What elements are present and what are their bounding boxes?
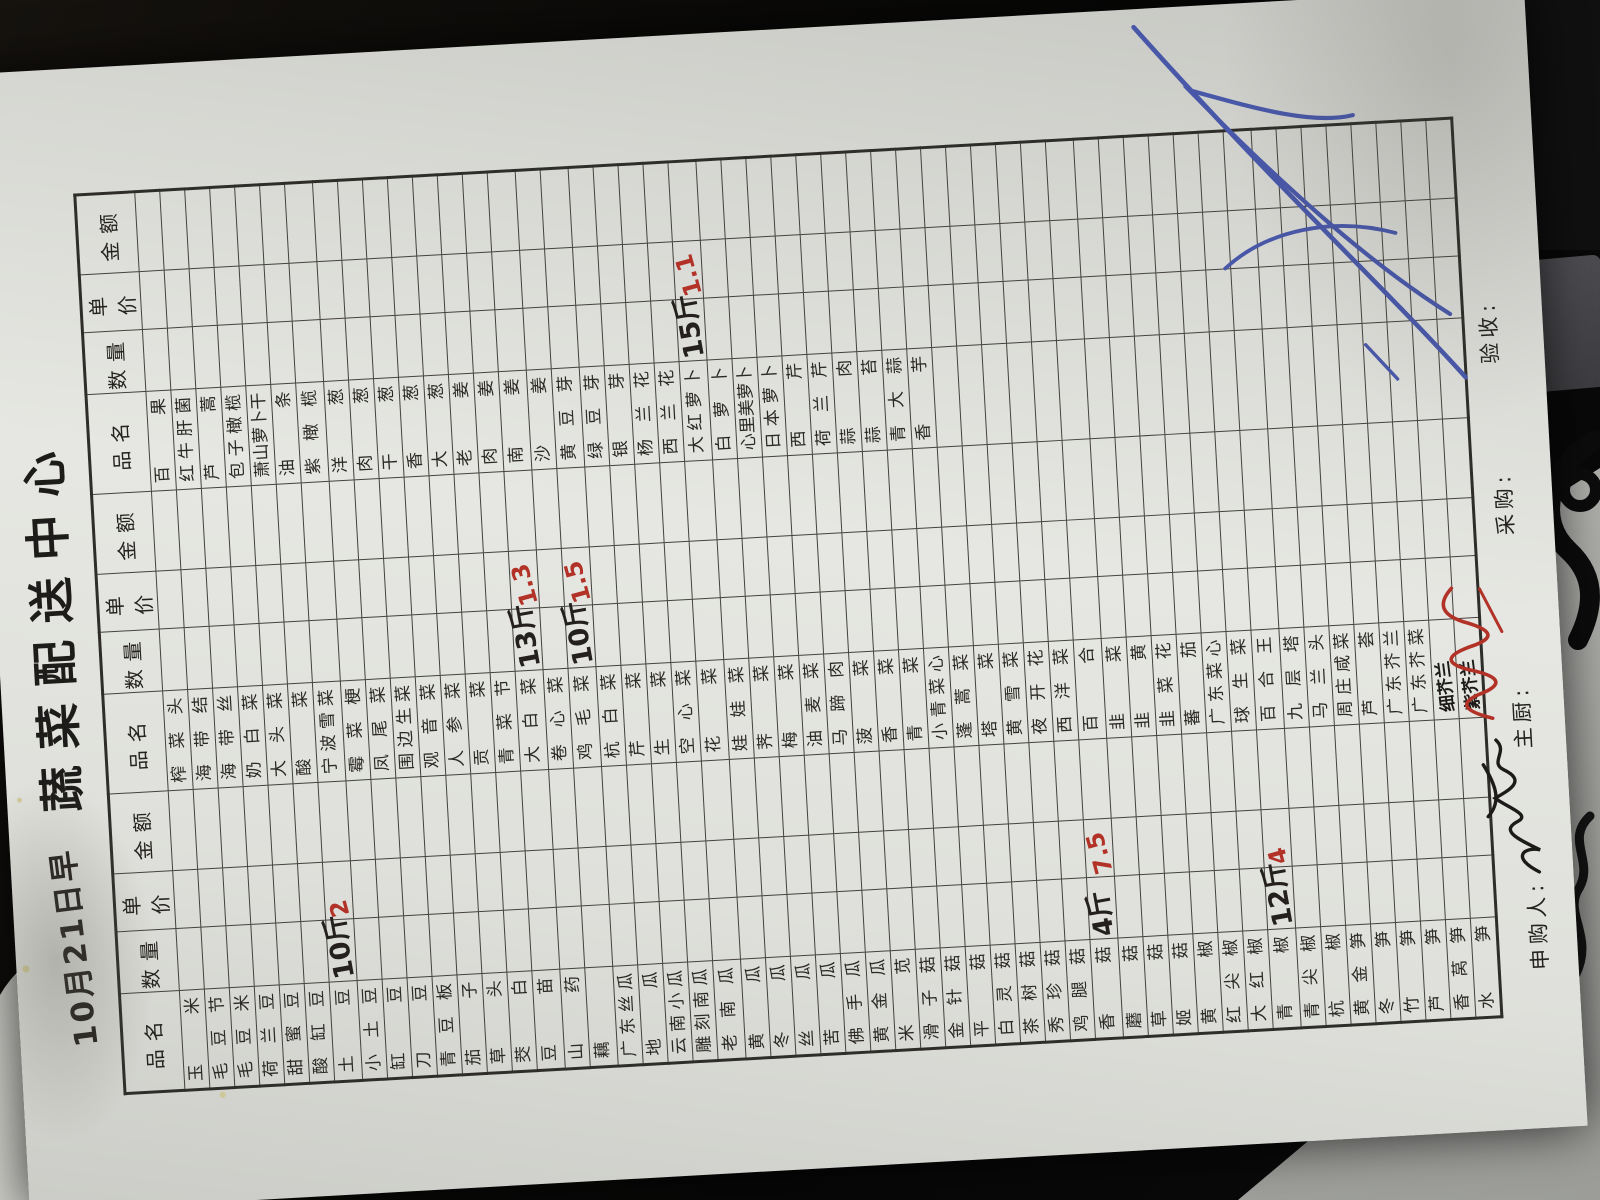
item-name: 大头菜 xyxy=(267,687,289,783)
price-cell xyxy=(1330,204,1358,263)
qty-cell xyxy=(1317,863,1345,926)
amount-cell xyxy=(504,470,536,551)
price-cell xyxy=(248,865,276,924)
price-cell xyxy=(1025,221,1053,280)
qty-cell xyxy=(370,315,398,378)
price-cell xyxy=(884,830,912,889)
qty-cell xyxy=(1156,271,1184,334)
item-name: 秀珍菇 xyxy=(1044,944,1066,1039)
qty-cell xyxy=(1425,557,1453,620)
item-name: 蕃茄 xyxy=(1180,636,1202,732)
qty-cell xyxy=(1375,560,1403,623)
item-name: 毛豆节 xyxy=(208,990,230,1085)
price-cell xyxy=(975,223,1003,282)
item-name: 小青菜心 xyxy=(928,650,950,746)
item-name: 菠菜 xyxy=(853,654,875,750)
item-name: 红牛肝菌 xyxy=(175,391,197,487)
item-name: 酸菜 xyxy=(292,685,314,781)
tape-speck xyxy=(22,965,29,972)
qty-cell xyxy=(404,914,432,977)
qty-cell xyxy=(601,302,629,365)
item-name: 沙姜 xyxy=(530,371,552,467)
qty-cell xyxy=(945,584,973,647)
price-cell xyxy=(925,226,953,285)
item-name: 酸缸豆 xyxy=(308,985,330,1080)
amount-cell xyxy=(701,759,733,840)
price-cell xyxy=(1178,212,1206,271)
qty-cell xyxy=(970,582,998,645)
item-name: 生菜 xyxy=(650,665,672,761)
price-cell xyxy=(1314,805,1342,864)
price-cell xyxy=(367,257,395,316)
amount-cell xyxy=(668,160,700,241)
qty-cell xyxy=(1359,260,1387,323)
price-cell xyxy=(1119,516,1147,575)
price-cell xyxy=(1347,503,1375,562)
amount-cell xyxy=(557,467,589,548)
price-cell xyxy=(800,233,828,292)
qty-cell xyxy=(1417,858,1445,921)
price-cell xyxy=(706,839,737,898)
tape-speck xyxy=(220,1092,226,1098)
item-name: 卷心菜 xyxy=(547,671,569,767)
qty-cell xyxy=(445,311,473,374)
item-name: 小土豆 xyxy=(361,982,383,1077)
qty-cell xyxy=(720,596,748,659)
item-name: 老姜 xyxy=(453,376,475,472)
qty-cell xyxy=(503,909,531,972)
price-cell xyxy=(850,230,878,289)
item-name: 鸡毛菜 xyxy=(574,670,596,766)
price-cell xyxy=(442,253,470,312)
item-name: 香葱 xyxy=(403,379,425,475)
item-name: 韭黄 xyxy=(1130,638,1152,734)
item-name: 韭菜 xyxy=(1105,640,1127,736)
price-cell xyxy=(614,544,642,603)
item-name: 花菜 xyxy=(701,662,723,758)
qty-cell xyxy=(667,599,695,662)
price-cell xyxy=(817,533,845,592)
qty-cell xyxy=(1189,871,1217,934)
qty-cell xyxy=(828,290,856,353)
amount-cell xyxy=(1079,738,1111,819)
item-name: 荠菜 xyxy=(753,659,775,755)
item-name: 苦瓜 xyxy=(820,956,842,1051)
qty-cell xyxy=(1037,879,1065,942)
amount-cell xyxy=(1223,129,1255,210)
qty-cell xyxy=(837,890,865,953)
qty-cell xyxy=(1148,572,1176,635)
price-cell xyxy=(958,825,986,884)
price-cell xyxy=(834,832,862,891)
price-cell xyxy=(198,868,226,927)
price-cell xyxy=(1042,520,1070,579)
price-cell xyxy=(359,558,387,617)
item-name: 南姜 xyxy=(504,373,526,469)
item-name: 黄雪菜 xyxy=(1002,646,1024,742)
qty-cell xyxy=(1003,280,1031,343)
item-name: 草菇 xyxy=(1147,938,1169,1033)
qty-cell xyxy=(659,900,687,963)
price-cell xyxy=(1227,209,1258,268)
item-name: 金针菇 xyxy=(944,949,966,1044)
price-cell xyxy=(164,269,192,328)
qty-cell xyxy=(470,310,498,373)
price-cell xyxy=(1372,502,1400,561)
header-cell-amount: 金额 xyxy=(92,491,156,574)
qty-cell xyxy=(276,922,304,985)
qty-cell xyxy=(523,307,551,370)
price-cell xyxy=(1236,810,1264,869)
qty-cell xyxy=(362,616,390,679)
price-cell xyxy=(1161,814,1189,873)
qty-cell xyxy=(1334,262,1362,325)
item-name: 缸豆 xyxy=(386,980,408,1075)
price-cell xyxy=(1464,797,1493,856)
price-cell xyxy=(475,852,503,911)
qty-cell xyxy=(478,910,506,973)
qty-cell xyxy=(795,592,823,655)
qty-cell xyxy=(787,893,815,956)
price-cell xyxy=(1422,499,1450,558)
qty-cell xyxy=(495,308,526,371)
price-cell xyxy=(1128,215,1156,274)
chef-label: 主厨: xyxy=(1505,684,1539,750)
item-name: 西芹 xyxy=(786,357,808,453)
handwritten-price: 1.5 xyxy=(560,558,594,605)
item-name: 百合 xyxy=(1079,641,1101,737)
item-name: 老南瓜 xyxy=(718,962,740,1057)
price-cell xyxy=(500,851,528,910)
price-cell xyxy=(1219,510,1247,569)
qty-cell xyxy=(1300,564,1328,627)
item-name: 榨菜头 xyxy=(167,692,189,788)
qty-cell xyxy=(1367,861,1395,924)
item-name: 凤尾菜 xyxy=(369,681,391,777)
qty-cell xyxy=(1342,862,1370,925)
item-name: 青尖椒 xyxy=(1300,929,1322,1024)
price-cell xyxy=(239,265,267,324)
price-cell xyxy=(734,838,762,897)
price-cell xyxy=(631,844,659,903)
price-cell xyxy=(983,824,1011,883)
price-cell xyxy=(483,551,511,610)
item-name: 青豆板 xyxy=(436,978,458,1073)
qty-cell xyxy=(778,293,806,356)
item-name: 竹笋 xyxy=(1400,924,1422,1019)
price-cell xyxy=(400,857,428,916)
price-cell xyxy=(656,842,684,901)
price-cell xyxy=(775,235,803,294)
amount-cell xyxy=(1442,418,1472,499)
item-name: 广东芥兰 xyxy=(1383,624,1405,720)
item-name: 香菇 xyxy=(1096,941,1118,1036)
item-name: 夜开花 xyxy=(1027,644,1049,740)
amount-cell xyxy=(301,481,333,562)
item-name: 韭菜花 xyxy=(1155,637,1177,733)
item-name: 冬瓜 xyxy=(770,959,792,1054)
price-cell xyxy=(1144,514,1172,573)
item-name: 贡菜 xyxy=(469,675,491,771)
item-name: 观音菜 xyxy=(419,678,441,774)
price-cell xyxy=(1103,216,1131,275)
price-cell xyxy=(1414,800,1442,859)
price-cell xyxy=(1136,815,1164,874)
item-name: 白萝卜 xyxy=(711,361,733,457)
item-name: 广东芥菜 xyxy=(1408,623,1430,719)
qty-cell xyxy=(242,323,270,386)
item-name: 人参菜 xyxy=(444,677,466,773)
qty-cell xyxy=(1392,859,1420,922)
price-cell xyxy=(1255,208,1283,267)
item-name: 平菇 xyxy=(969,948,991,1043)
item-name: 广东菜心 xyxy=(1205,634,1227,730)
item-name: 佛手瓜 xyxy=(844,955,866,1050)
item-name: 香莴笋 xyxy=(1450,921,1472,1016)
price-cell xyxy=(859,831,887,890)
price-cell xyxy=(1194,512,1222,571)
item-name: 地瓜 xyxy=(642,966,664,1061)
price-cell xyxy=(317,260,345,319)
qty-cell xyxy=(887,887,915,950)
item-name: 芦荟 xyxy=(1358,626,1380,722)
price-cell xyxy=(334,560,362,619)
qty-cell xyxy=(753,294,781,357)
price-cell xyxy=(458,553,486,612)
price-cell xyxy=(467,252,495,311)
amount-cell xyxy=(487,170,519,251)
qty-cell xyxy=(737,896,765,959)
price-cell xyxy=(1058,820,1086,879)
price-cell: 1.1 xyxy=(672,240,703,299)
header-cell-amount: 金额 xyxy=(75,192,139,275)
qty-cell: 12斤 xyxy=(1264,866,1295,929)
item-name: 刀豆 xyxy=(411,979,433,1074)
qty-cell xyxy=(556,906,584,969)
item-name: 周庄咸菜 xyxy=(1333,627,1355,723)
item-name: 大葱 xyxy=(428,377,450,473)
price-cell xyxy=(742,537,770,596)
qty-cell xyxy=(1231,267,1262,330)
price-cell xyxy=(525,849,556,908)
item-name: 茶树菇 xyxy=(1019,945,1041,1040)
price-cell xyxy=(1405,199,1433,258)
qty-cell xyxy=(1400,558,1428,621)
price-cell xyxy=(892,529,920,588)
price-cell xyxy=(545,247,576,306)
qty-cell xyxy=(853,288,881,351)
qty-cell xyxy=(1450,555,1479,618)
price-cell xyxy=(992,523,1020,582)
qty-cell xyxy=(1123,574,1151,637)
amount-cell xyxy=(1045,139,1077,220)
item-name: 青菜节 xyxy=(494,674,516,770)
price-cell xyxy=(647,242,675,301)
item-name: 西兰花 xyxy=(658,364,680,460)
item-name: 山药 xyxy=(564,971,586,1066)
qty-cell xyxy=(176,927,204,990)
price-cell xyxy=(1272,507,1300,566)
qty-cell xyxy=(462,611,490,674)
qty-cell xyxy=(1247,567,1278,630)
qty-cell xyxy=(1433,256,1462,319)
qty-cell xyxy=(1259,266,1287,329)
item-name: 黄金瓜 xyxy=(869,953,891,1048)
price-cell xyxy=(156,570,184,629)
qty-cell: 4斤 xyxy=(1086,876,1117,939)
qty-cell xyxy=(167,327,195,390)
item-name: 奶白菜 xyxy=(242,688,264,784)
item-name: 日本萝卜 xyxy=(761,359,783,455)
qty-cell xyxy=(309,619,340,682)
price-cell xyxy=(725,237,753,296)
qty-cell xyxy=(1139,873,1167,936)
item-name: 冬笋 xyxy=(1375,925,1397,1020)
amount-cell xyxy=(685,460,717,541)
header-cell-amount: 金额 xyxy=(108,791,172,874)
header-cell-name: 品名 xyxy=(86,391,151,494)
price-cell xyxy=(664,541,692,600)
qty-cell xyxy=(1325,562,1353,625)
form-title: 蔬菜配送中心 xyxy=(7,433,94,814)
price-cell xyxy=(409,556,437,615)
qty-cell xyxy=(626,301,654,364)
item-name: 蒜肉 xyxy=(836,354,858,450)
price-cell xyxy=(1397,500,1425,559)
qty-cell xyxy=(1206,269,1234,332)
qty-cell xyxy=(912,886,940,949)
price-cell xyxy=(750,236,778,295)
item-name: 洋葱 xyxy=(328,383,350,479)
price-cell xyxy=(967,524,995,583)
price-cell xyxy=(1153,214,1181,273)
qty-cell xyxy=(1173,571,1201,634)
qty-cell xyxy=(820,591,848,654)
item-name: 马蹄肉 xyxy=(828,655,850,751)
price-cell xyxy=(1364,803,1392,862)
header-cell-qty: 数量 xyxy=(116,929,179,994)
amount-cell xyxy=(1426,118,1456,199)
qty-cell xyxy=(1106,274,1134,337)
qty-cell xyxy=(226,924,254,987)
handwritten-price: 1.1 xyxy=(671,252,705,299)
price-cell xyxy=(297,862,325,921)
price-cell xyxy=(1430,198,1459,257)
qty-cell xyxy=(251,923,279,986)
price-cell xyxy=(264,263,292,322)
name-cell xyxy=(1437,318,1469,419)
qty-cell: 10斤 xyxy=(565,605,596,668)
item-name: 水笋 xyxy=(1474,920,1496,1015)
item-name: 干葱 xyxy=(378,380,400,476)
qty-cell xyxy=(292,320,323,383)
price-cell xyxy=(342,259,370,318)
price-cell: 1.3 xyxy=(508,550,539,609)
qty-cell xyxy=(962,883,990,946)
inspector-label: 验收: xyxy=(1471,299,1505,365)
price-cell xyxy=(417,255,445,314)
price-cell xyxy=(173,869,201,928)
item-name: 油条 xyxy=(275,386,297,482)
item-name: 大红萝卜 xyxy=(685,363,707,459)
qty-cell xyxy=(1131,273,1159,336)
price-cell xyxy=(450,854,478,913)
qty-cell xyxy=(928,284,956,347)
item-name: 西洋菜 xyxy=(1052,643,1074,739)
qty-cell xyxy=(770,593,798,656)
price-cell xyxy=(909,828,937,887)
price-cell xyxy=(572,246,600,305)
item-name: 蘑菇 xyxy=(1122,939,1144,1034)
item-name: 空心菜 xyxy=(675,664,697,760)
qty-cell xyxy=(1181,270,1209,333)
qty-cell xyxy=(192,325,220,388)
item-name: 心里美萝卜 xyxy=(736,360,758,456)
qty-cell xyxy=(159,628,187,691)
price-cell xyxy=(1447,497,1476,556)
item-name: 红尖椒 xyxy=(1222,934,1244,1029)
amount-cell xyxy=(1257,728,1289,809)
price-cell: 7.5 xyxy=(1083,818,1114,877)
amount-cell xyxy=(521,770,553,851)
price-cell xyxy=(1008,823,1036,882)
qty-cell xyxy=(609,903,637,966)
qty-cell xyxy=(1045,578,1073,641)
item-name: 香菜 xyxy=(878,653,900,749)
qty-cell xyxy=(379,916,407,979)
qty-cell xyxy=(1070,577,1101,640)
qty-cell xyxy=(745,595,773,658)
price-cell xyxy=(917,527,945,586)
price-cell xyxy=(375,858,403,917)
item-name: 荷兰芹 xyxy=(811,356,833,452)
header-cell-name: 品名 xyxy=(119,990,184,1093)
qty-cell xyxy=(209,625,237,688)
amount-cell xyxy=(318,781,350,862)
item-name: 雕刻南瓜 xyxy=(692,963,714,1058)
qty-cell xyxy=(1222,568,1250,631)
price-cell xyxy=(1169,513,1197,572)
handwritten-price: 1.3 xyxy=(507,561,541,608)
item-name: 海带结 xyxy=(192,691,214,787)
price-cell xyxy=(689,540,720,599)
item-name: 芦蒿 xyxy=(200,390,222,486)
item-name: 云南小瓜 xyxy=(667,965,689,1060)
item-name: 毛豆米 xyxy=(233,989,255,1084)
item-name: 萧山萝卜干 xyxy=(250,387,272,483)
qty-cell xyxy=(1309,263,1337,326)
price-cell xyxy=(520,249,548,308)
price-cell xyxy=(492,250,523,309)
price-cell xyxy=(273,864,301,923)
price-cell: 4 xyxy=(1261,808,1292,867)
price-cell xyxy=(942,526,970,585)
qty-cell xyxy=(803,291,831,354)
qty-cell xyxy=(548,305,579,368)
price-cell xyxy=(639,543,667,602)
header-cell-name: 品名 xyxy=(103,691,168,794)
item-name: 百果 xyxy=(150,393,172,489)
item-name: 黄瓜 xyxy=(745,960,767,1055)
qty-cell xyxy=(895,586,923,649)
price-cell xyxy=(1389,801,1417,860)
item-name: 白灵菇 xyxy=(994,946,1016,1041)
purchaser-label: 采购: xyxy=(1487,470,1521,536)
qty-cell xyxy=(259,622,287,685)
item-name: 滑子菇 xyxy=(919,951,941,1046)
price-cell xyxy=(1297,506,1325,565)
order-table: 品名数量单价金额品名数量单价金额品名数量单价金额玉米榨菜头百果毛豆节海带结红牛肝… xyxy=(73,117,1503,1096)
